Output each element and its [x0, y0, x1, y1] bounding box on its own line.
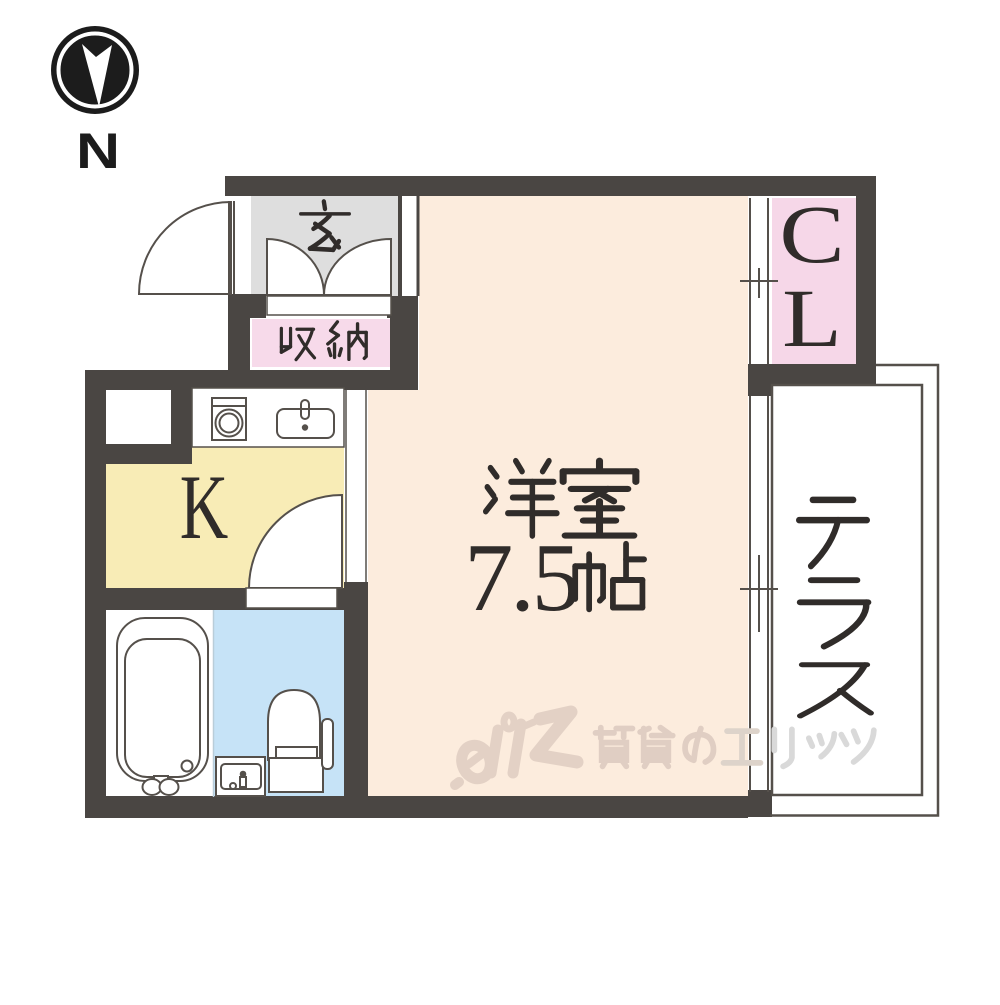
svg-text:K: K — [180, 457, 229, 559]
svg-text:C: C — [779, 188, 844, 280]
svg-text:N: N — [76, 123, 120, 179]
svg-text:7.5: 7.5 — [464, 524, 578, 632]
svg-text:L: L — [782, 272, 842, 364]
